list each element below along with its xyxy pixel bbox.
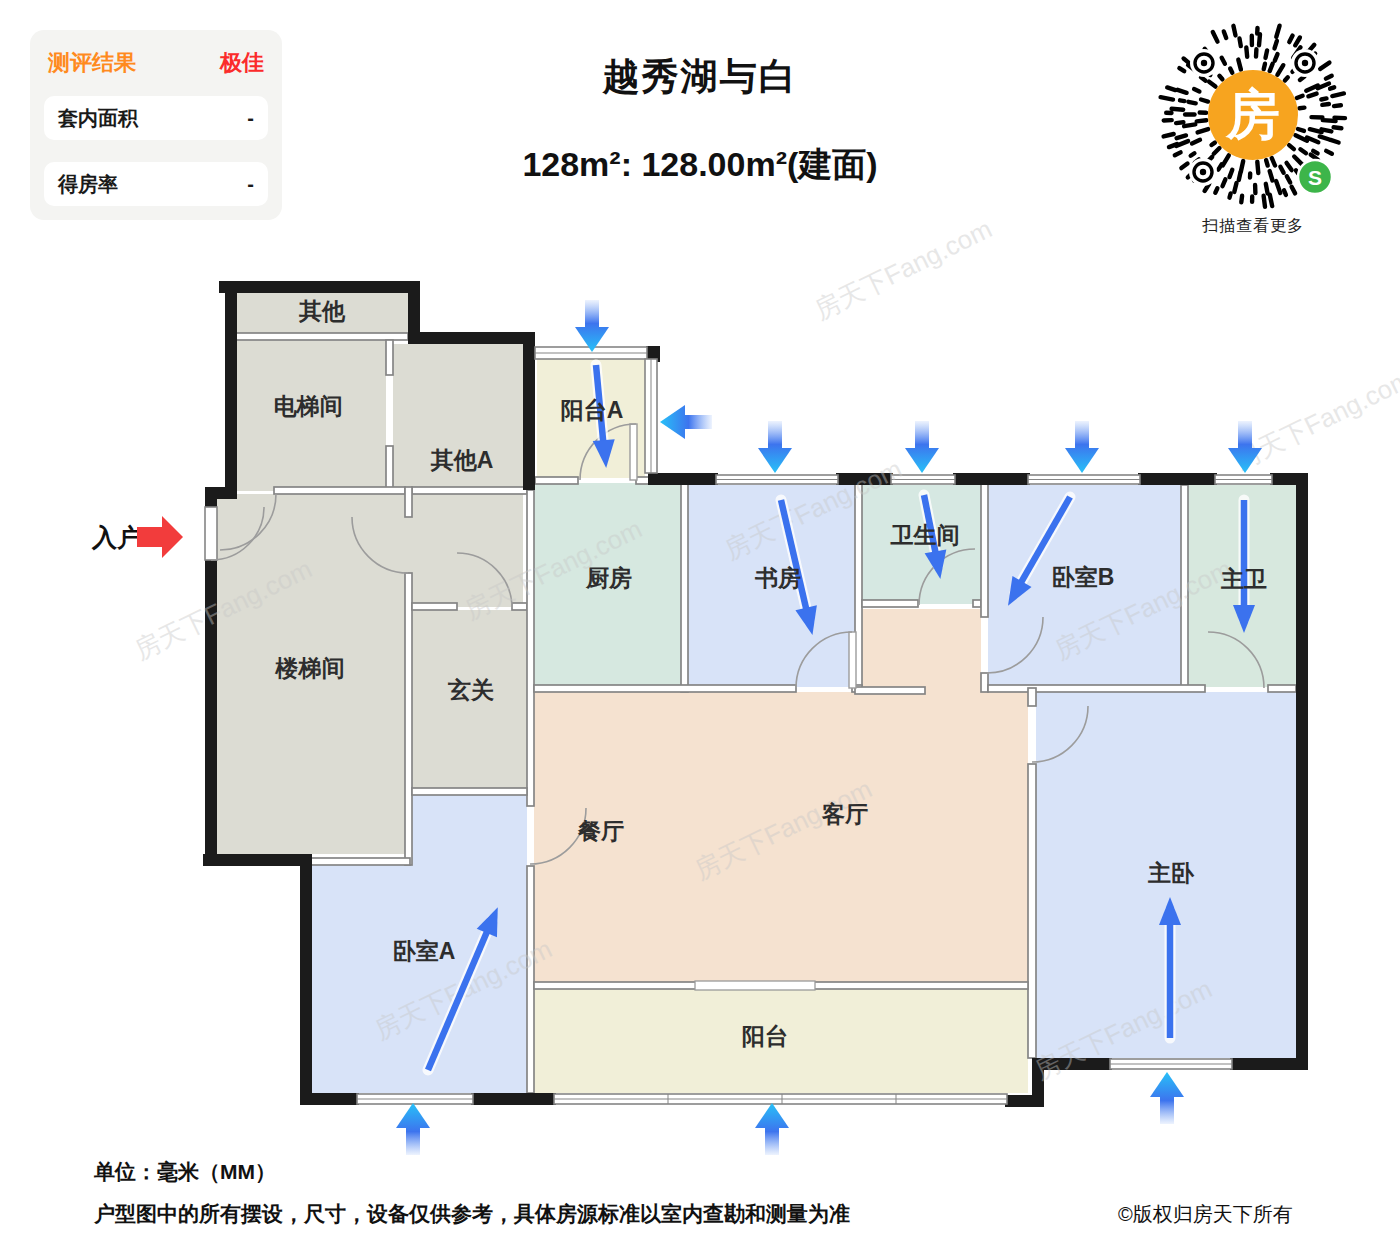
room-fills — [215, 293, 1296, 1093]
disclaimer-text: 户型图中的所有摆设，尺寸，设备仅供参考，具体房源标准以室内查勘和测量为准 — [94, 1200, 850, 1228]
room-label-balcony-a: 阳台A — [561, 397, 624, 423]
copyright-text: ©版权归房天下所有 — [1118, 1201, 1293, 1228]
room-label-master-bath: 主卫 — [1220, 566, 1267, 592]
unit-note: 单位：毫米（MM） — [94, 1158, 276, 1186]
room-label-balcony: 阳台 — [742, 1023, 788, 1049]
room-label-other-a: 其他A — [430, 447, 494, 473]
room-label-living: 客厅 — [821, 801, 868, 827]
room-label-bathroom: 卫生间 — [890, 522, 960, 548]
balcony-slider-opening — [695, 981, 815, 990]
entry-label: 入户 — [91, 523, 142, 551]
room-label-other: 其他 — [298, 298, 346, 324]
svg-text:房天下Fang.com: 房天下Fang.com — [1229, 364, 1400, 476]
room-label-kitchen: 厨房 — [585, 565, 632, 591]
floor-plan: 房天下Fang.com 房天下Fang.com 房天下Fang.com 房天下F… — [0, 0, 1400, 1247]
room-label-foyer: 玄关 — [447, 677, 494, 703]
room-label-stair-hall: 楼梯间 — [275, 655, 345, 681]
entry-marker: 入户 — [91, 516, 183, 558]
room-label-bedroom-a: 卧室A — [393, 938, 456, 964]
room-label-master-bedroom: 主卧 — [1147, 860, 1195, 886]
room-label-dining: 餐厅 — [577, 818, 624, 844]
room-label-study: 书房 — [754, 565, 801, 591]
room-label-bedroom-b: 卧室B — [1052, 564, 1115, 590]
room-other-a — [393, 344, 523, 607]
svg-text:房天下Fang.com: 房天下Fang.com — [809, 214, 996, 326]
entry-arrow-icon — [137, 516, 183, 558]
room-label-elevator-hall: 电梯间 — [274, 393, 343, 419]
